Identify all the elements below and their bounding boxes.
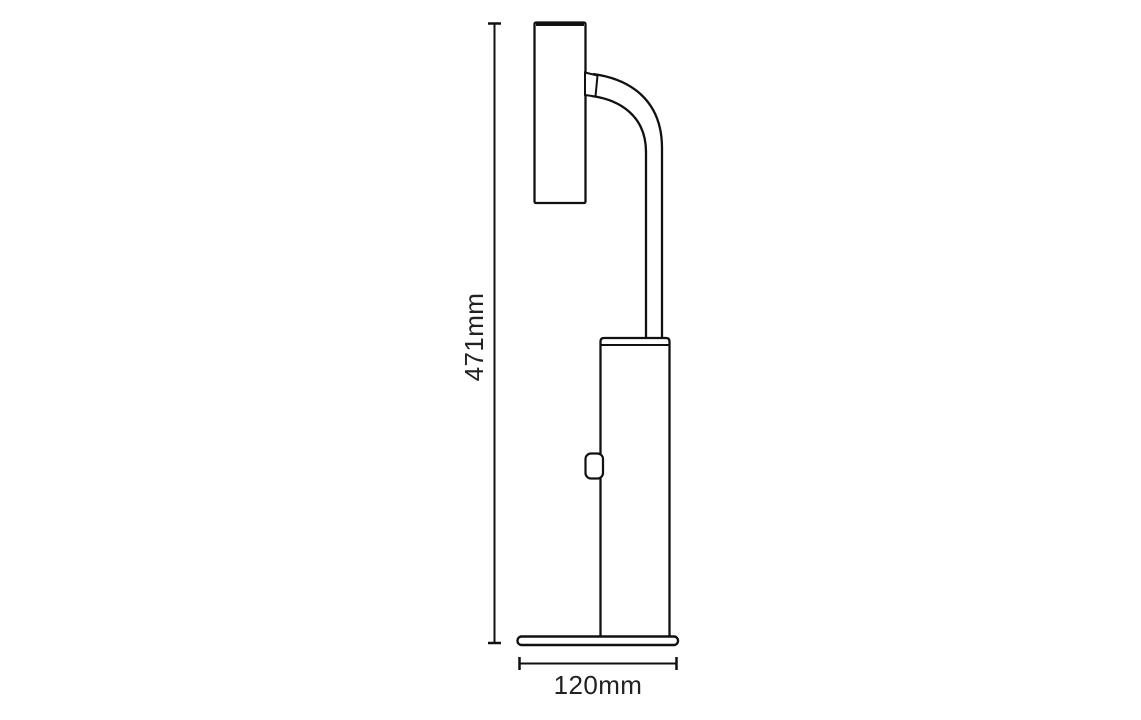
head-arm-connector bbox=[585, 73, 598, 97]
lamp-head bbox=[535, 23, 598, 204]
arm-inner-curve bbox=[592, 96, 646, 338]
arm-outer-curve bbox=[593, 74, 662, 338]
lamp-base bbox=[518, 637, 679, 646]
lamp-technical-drawing bbox=[0, 0, 1141, 720]
lamp-body bbox=[586, 338, 670, 638]
power-switch bbox=[586, 454, 604, 479]
lamp-arm bbox=[592, 74, 662, 338]
height-dimension-label: 471mm bbox=[458, 267, 490, 407]
width-dimension-label: 120mm bbox=[528, 669, 668, 701]
drawing-canvas: 471mm 120mm bbox=[0, 0, 1141, 720]
base-plate bbox=[518, 637, 679, 646]
body-outline bbox=[601, 338, 670, 638]
head-outline bbox=[535, 23, 586, 204]
